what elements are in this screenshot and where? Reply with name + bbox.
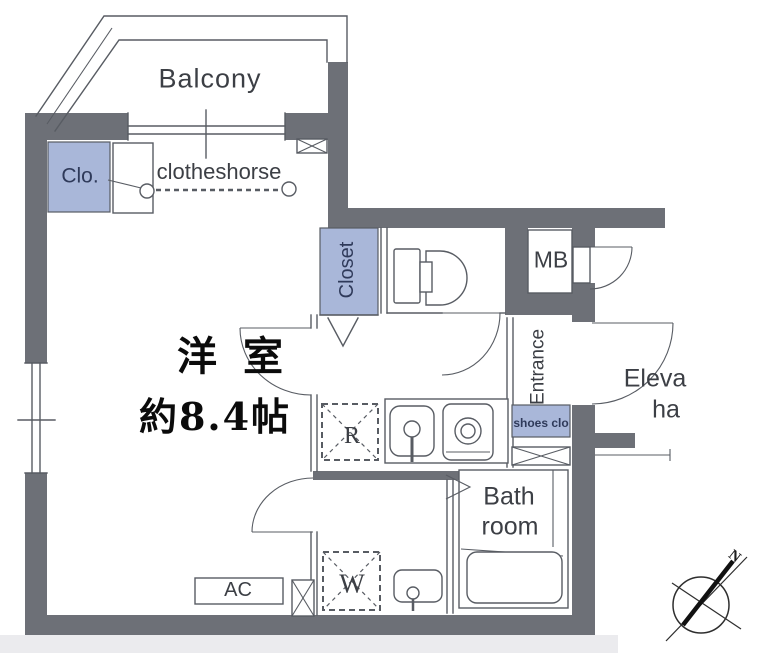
mb-door-icon	[573, 247, 632, 289]
clotheshorse-pole	[282, 182, 296, 196]
side-window-icon	[18, 363, 55, 473]
clotheshorse-pole	[140, 184, 154, 198]
refrigerator-label: R	[344, 424, 360, 448]
wall-segment	[328, 62, 348, 208]
door-swing-arc	[252, 478, 313, 532]
toilet-tank	[394, 249, 420, 303]
shoes-closet-label: shoes clo	[513, 417, 568, 429]
wall-segment	[505, 228, 528, 293]
toilet-icon	[394, 249, 467, 305]
washroom-door-icon	[252, 478, 313, 532]
wall-segment	[328, 208, 665, 228]
closet-folding-door-icon	[320, 315, 378, 346]
clotheshorse-label: clotheshorse	[157, 161, 282, 183]
room-partition	[311, 315, 317, 615]
elevator-hall-label-line1: Eleva	[624, 367, 687, 392]
toilet-seat	[420, 262, 432, 292]
balcony-label: Balcony	[158, 66, 261, 93]
wall-segment	[572, 228, 595, 247]
door-panel	[573, 247, 590, 283]
floor-plan: Balcony Clo. clotheshorse 洋室 約8.4帖 Close…	[0, 0, 761, 653]
vent-icon	[512, 447, 570, 465]
wall-segment	[572, 433, 635, 448]
stove-icon	[443, 404, 493, 460]
compass-axis	[672, 583, 741, 629]
pipe-shaft-icon	[292, 580, 314, 616]
toilet-door-icon	[442, 313, 500, 375]
compass-icon	[666, 557, 747, 641]
mb-label: MB	[534, 249, 569, 272]
washbasin-icon	[394, 570, 442, 611]
entrance-label: Entrance	[529, 329, 548, 405]
sink-icon	[390, 406, 434, 462]
wall-segment	[25, 473, 47, 615]
door-swing-arc	[442, 313, 500, 375]
clotheshorse-icon	[140, 182, 296, 198]
wall-segment	[25, 113, 128, 140]
elevator-hall-label-line2: ha	[652, 398, 680, 423]
clo-label: Clo.	[61, 166, 98, 187]
sink-faucet	[404, 421, 420, 437]
ac-unit-label: AC	[224, 580, 252, 600]
vent-icon	[297, 139, 327, 153]
parapet-line	[47, 28, 112, 124]
floor-plan-linework	[0, 0, 761, 653]
room-name-label: 洋室	[177, 337, 309, 377]
room-size-label: 約8.4帖	[139, 398, 291, 436]
wall-segment	[25, 140, 47, 363]
toilet-room	[381, 228, 505, 375]
ground-shadow-band	[0, 635, 618, 653]
compass-axis	[666, 557, 747, 641]
wall-segment	[25, 615, 593, 635]
wall-segment	[285, 113, 330, 140]
washbasin-faucet	[407, 587, 419, 599]
bathroom-label-line2: room	[482, 515, 539, 540]
clo-door-panel	[113, 143, 153, 213]
door-swing-arc	[590, 247, 632, 289]
closet-label: Closet	[337, 242, 357, 299]
washer-label: W	[339, 571, 364, 598]
bathroom-label-line1: Bath	[483, 485, 534, 510]
elevator-hall-lines	[595, 449, 670, 461]
closet-fold-symbol	[328, 318, 358, 346]
bathtub-icon	[467, 552, 562, 603]
